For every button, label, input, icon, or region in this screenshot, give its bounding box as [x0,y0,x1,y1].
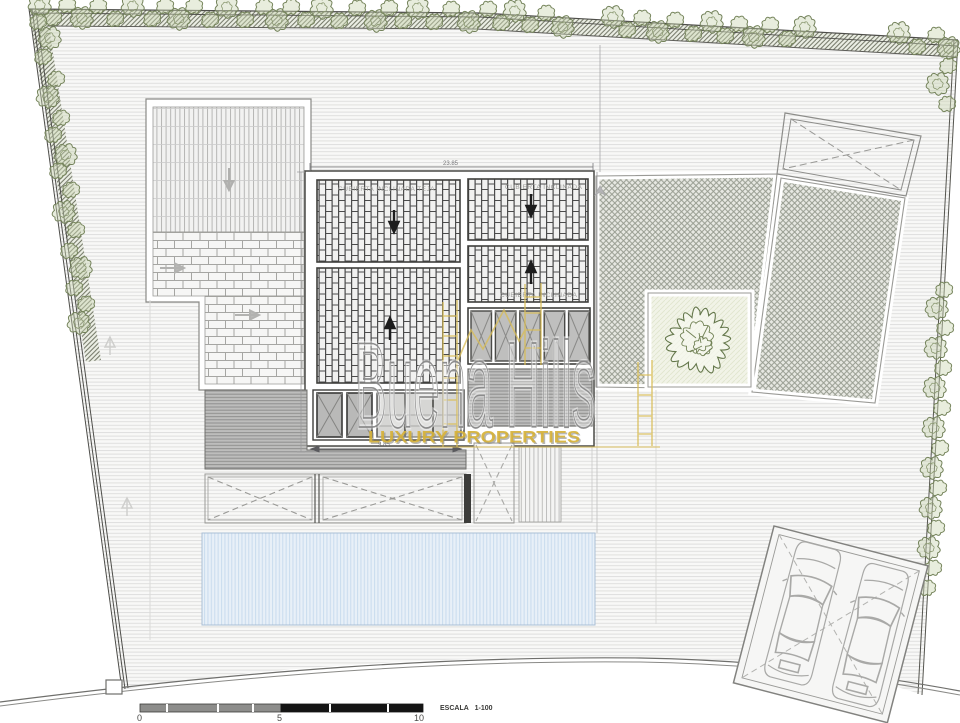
svg-text:CUBIERTA INCLINADA: CUBIERTA INCLINADA [500,292,578,299]
svg-text:10: 10 [414,713,424,723]
svg-text:LUXURY PROPERTIES: LUXURY PROPERTIES [368,429,580,447]
svg-text:0: 0 [137,713,142,723]
svg-text:5: 5 [277,713,282,723]
svg-text:ESCALA 1-100: ESCALA 1-100 [440,705,493,712]
svg-text:CUBIERTA INCLINADA: CUBIERTA INCLINADA [505,184,583,191]
svg-text:23.85: 23.85 [443,161,459,167]
svg-text:CUBIERTA INCLINADA TEJA: CUBIERTA INCLINADA TEJA [338,186,435,193]
